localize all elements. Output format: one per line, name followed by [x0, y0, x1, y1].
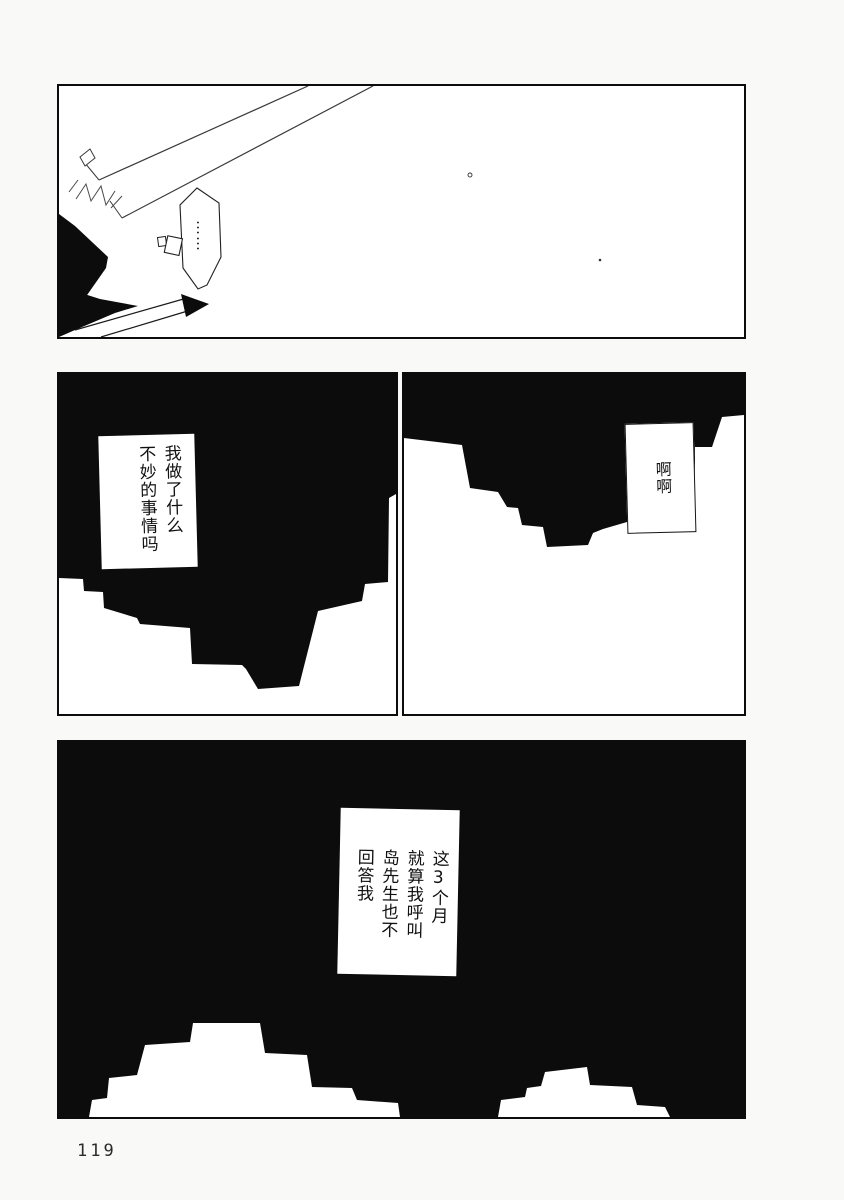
caption-line: 我做了什么	[157, 444, 186, 568]
panel-top-artwork	[59, 86, 744, 337]
caption-box: 我做了什么 不妙的事情吗	[98, 434, 197, 569]
page-number: 119	[77, 1141, 117, 1161]
manga-page: …… 我做了什么 不妙的事情吗 啊啊 这3个月	[0, 0, 844, 1200]
speech-bubble-text: ……	[189, 198, 211, 274]
panel-bottom: 这3个月 就算我呼叫 岛先生也不 回答我	[57, 740, 746, 1119]
beam-lower-line	[122, 86, 373, 218]
panel-middle-left: 我做了什么 不妙的事情吗	[57, 372, 398, 716]
caption-line: 啊啊	[649, 424, 676, 533]
caption-line: 岛先生也不	[373, 849, 401, 975]
bubble-tail-large-square	[164, 236, 182, 256]
caption-line: 这3个月	[423, 850, 451, 976]
speck-circle	[468, 173, 472, 177]
beam-tip-line-2	[110, 201, 122, 218]
panel-top: ……	[57, 84, 746, 339]
pole-hook-shape	[80, 149, 95, 166]
foot-silhouette	[181, 294, 209, 317]
beam-upper-line	[99, 86, 308, 180]
hair-spikes	[69, 180, 122, 208]
speck-dot	[599, 259, 602, 262]
caption-box: 啊啊	[625, 422, 697, 534]
caption-line: 就算我呼叫	[398, 849, 426, 975]
caption-line: 回答我	[348, 848, 376, 974]
caption-line: 不妙的事情吗	[132, 445, 161, 569]
caption-box: 这3个月 就算我呼叫 岛先生也不 回答我	[337, 808, 459, 976]
panel-middle-right: 啊啊	[402, 372, 746, 716]
